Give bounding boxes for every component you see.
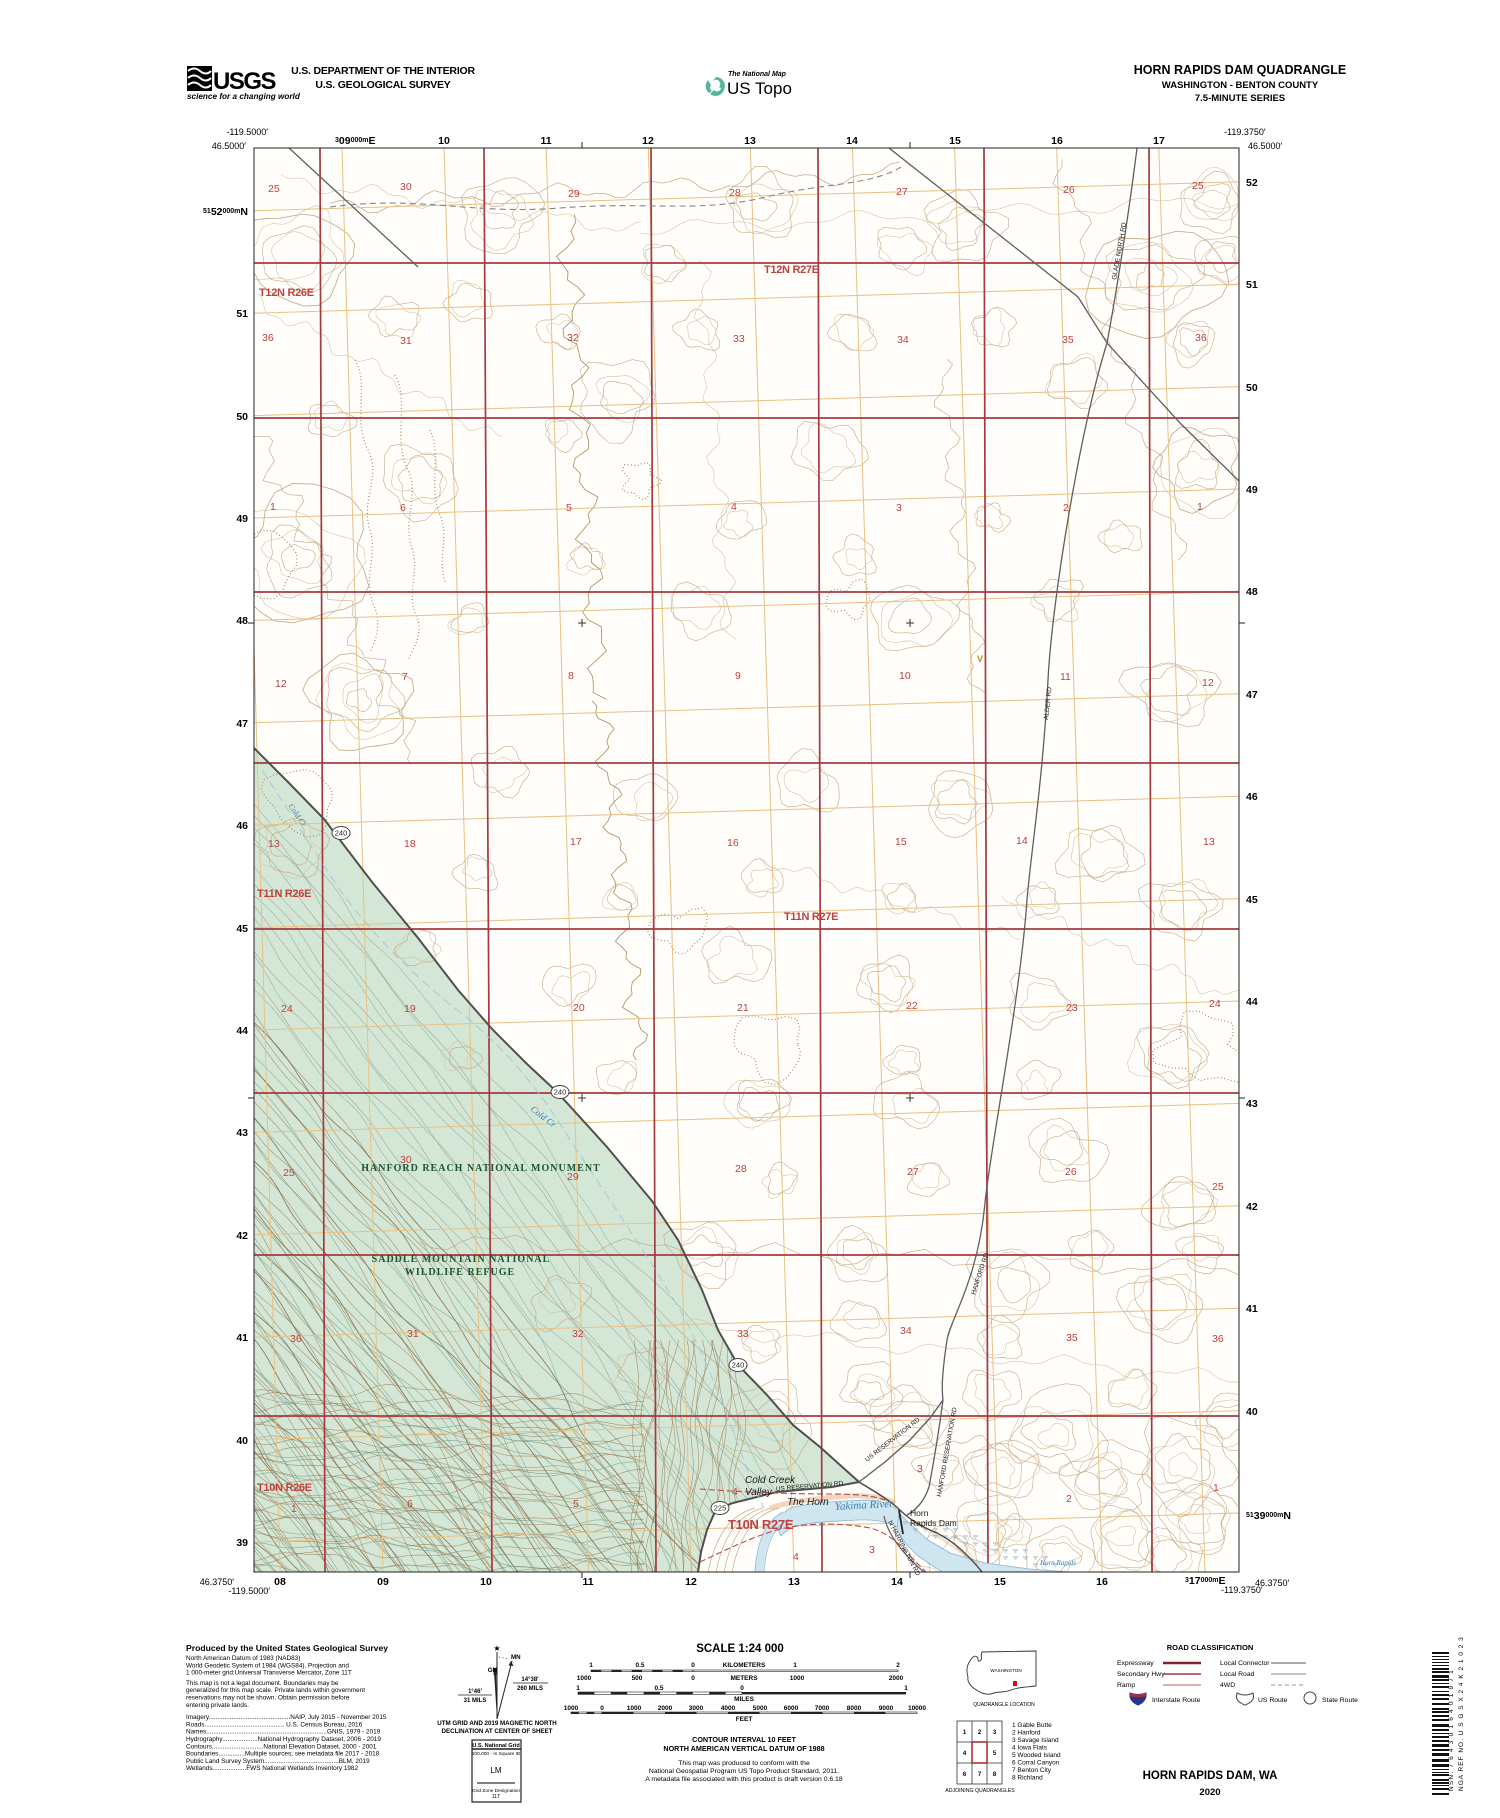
svg-text:15: 15: [895, 836, 907, 848]
svg-text:Ramp: Ramp: [1117, 1682, 1135, 1689]
svg-text:11T: 11T: [492, 1794, 500, 1800]
svg-text:0: 0: [740, 1685, 744, 1692]
svg-text:1 000-meter grid:Universal Tra: 1 000-meter grid:Universal Transverse Me…: [186, 1670, 352, 1677]
svg-text:MILES: MILES: [734, 1696, 755, 1703]
svg-text:43: 43: [236, 1127, 248, 1139]
svg-text:Horn Rapids: Horn Rapids: [1039, 1559, 1076, 1567]
svg-text:SADDLE MOUNTAIN NATIONAL: SADDLE MOUNTAIN NATIONAL: [372, 1254, 551, 1265]
svg-text:U.S. National Grid: U.S. National Grid: [472, 1743, 520, 1749]
svg-text:1: 1: [1197, 501, 1203, 513]
svg-text:NSN. 7 6 4 3 0 1 6 4 0 1 9 7: NSN. 7 6 4 3 0 1 6 4 0 1 9 7 1: [1448, 1669, 1455, 1791]
svg-text:6000: 6000: [784, 1705, 799, 1712]
svg-text:1 Gable Butte: 1 Gable Butte: [1012, 1722, 1052, 1729]
svg-text:1: 1: [793, 1662, 797, 1669]
svg-text:1000: 1000: [627, 1705, 642, 1712]
svg-text:ROAD CLASSIFICATION: ROAD CLASSIFICATION: [1167, 1643, 1254, 1652]
svg-text:8000: 8000: [847, 1705, 862, 1712]
svg-text:11: 11: [1060, 671, 1071, 683]
svg-text:44: 44: [236, 1025, 248, 1037]
svg-text:24: 24: [1209, 998, 1221, 1010]
svg-text:09: 09: [377, 1576, 389, 1588]
svg-text:51: 51: [1246, 279, 1258, 291]
svg-text:2000: 2000: [658, 1705, 673, 1712]
svg-text:This map was produced to confo: This map was produced to conform with th…: [678, 1760, 810, 1767]
svg-text:0: 0: [691, 1662, 695, 1669]
svg-text:US Topo: US Topo: [727, 79, 792, 98]
svg-text:-119.5000′: -119.5000′: [226, 127, 268, 137]
svg-text:28: 28: [729, 187, 741, 199]
svg-text:12: 12: [1202, 677, 1214, 689]
svg-text:Produced by the United States: Produced by the United States Geological…: [186, 1643, 388, 1653]
svg-text:3 Savage Island: 3 Savage Island: [1012, 1737, 1059, 1744]
svg-text:2: 2: [1063, 502, 1069, 514]
svg-text:31: 31: [407, 1328, 419, 1340]
svg-text:entering private lands.: entering private lands.: [186, 1702, 249, 1709]
svg-text:8: 8: [568, 670, 574, 682]
svg-text:North American Datum of 1983 (: North American Datum of 1983 (NAD83): [186, 1655, 300, 1662]
svg-text:36: 36: [1195, 332, 1207, 344]
svg-text:Imagery.......................: Imagery.................................…: [186, 1714, 387, 1721]
svg-text:7: 7: [402, 671, 408, 683]
svg-text:31 MILS: 31 MILS: [464, 1698, 487, 1704]
svg-text:1: 1: [1213, 1482, 1219, 1494]
svg-text:31: 31: [400, 335, 412, 347]
svg-text:Wetlands...................FWS: Wetlands...................FWS National …: [186, 1765, 358, 1772]
svg-text:25: 25: [1212, 1181, 1224, 1193]
svg-text:16: 16: [727, 837, 739, 849]
svg-text:UTM GRID AND 2019 MAGNETIC NOR: UTM GRID AND 2019 MAGNETIC NORTH: [437, 1720, 557, 1727]
svg-text:HORN RAPIDS DAM QUADRANGLE: HORN RAPIDS DAM QUADRANGLE: [1134, 63, 1347, 77]
svg-text:METERS: METERS: [730, 1675, 758, 1682]
svg-text:-119.3750′: -119.3750′: [1224, 127, 1266, 137]
svg-text:DECLINATION AT CENTER OF SHEET: DECLINATION AT CENTER OF SHEET: [442, 1728, 553, 1735]
svg-text:2: 2: [896, 1662, 900, 1669]
svg-text:49: 49: [236, 513, 248, 525]
svg-text:23: 23: [1066, 1002, 1078, 1014]
svg-text:30: 30: [400, 181, 412, 193]
svg-text:21: 21: [737, 1002, 749, 1014]
svg-text:1000: 1000: [577, 1675, 592, 1682]
svg-text:NGA REF NO. U S G S X 2 4 K 2: NGA REF NO. U S G S X 2 4 K 2 1 0 2 3: [1458, 1636, 1465, 1791]
svg-text:U.S. GEOLOGICAL SURVEY: U.S. GEOLOGICAL SURVEY: [315, 79, 450, 91]
svg-text:Hydrography...................: Hydrography....................National …: [186, 1736, 381, 1743]
svg-text:QUADRANGLE LOCATION: QUADRANGLE LOCATION: [973, 1702, 1035, 1708]
svg-text:260 MILS: 260 MILS: [517, 1686, 543, 1692]
svg-text:NORTH AMERICAN VERTICAL DATUM: NORTH AMERICAN VERTICAL DATUM OF 1988: [663, 1744, 824, 1753]
svg-text:51: 51: [236, 308, 248, 320]
svg-text:MN: MN: [511, 1654, 521, 1661]
svg-text:LM: LM: [490, 1766, 501, 1775]
svg-text:10000: 10000: [908, 1705, 926, 1712]
svg-text:1: 1: [904, 1685, 908, 1692]
svg-text:36: 36: [262, 332, 274, 344]
svg-text:National Geospatial Program US: National Geospatial Program US Topo Prod…: [649, 1768, 839, 1775]
svg-text:Boundaries...............Multi: Boundaries...............Multiple source…: [186, 1751, 380, 1758]
svg-text:44: 44: [1246, 996, 1258, 1008]
svg-text:28: 28: [735, 1163, 747, 1175]
svg-text:1: 1: [576, 1685, 580, 1692]
svg-text:generalized for this map scale: generalized for this map scale. Private …: [186, 1687, 365, 1694]
svg-text:4000: 4000: [721, 1705, 736, 1712]
svg-text:12: 12: [685, 1576, 697, 1588]
svg-text:12: 12: [642, 135, 654, 147]
svg-text:Rapids Dam: Rapids Dam: [910, 1518, 957, 1528]
svg-text:14: 14: [891, 1576, 903, 1588]
svg-text:V: V: [977, 654, 983, 664]
svg-text:49: 49: [1246, 484, 1258, 496]
svg-text:T12N R26E: T12N R26E: [259, 287, 314, 299]
svg-text:WASHINGTON - BENTON COUNTY: WASHINGTON - BENTON COUNTY: [1162, 80, 1319, 91]
svg-text:SCALE 1:24 000: SCALE 1:24 000: [696, 1643, 784, 1655]
svg-text:08: 08: [274, 1576, 286, 1588]
svg-text:T10N R27E: T10N R27E: [728, 1517, 794, 1532]
svg-text:Local Road: Local Road: [1220, 1671, 1255, 1678]
svg-text:Public Land Survey Syste: Public Land Survey System...............…: [186, 1758, 370, 1765]
svg-text:22: 22: [906, 1000, 918, 1012]
svg-text:16: 16: [1051, 135, 1063, 147]
svg-text:47: 47: [1246, 689, 1258, 701]
svg-text:Valley: Valley: [745, 1487, 773, 1498]
svg-text:HANFORD REACH NATIONAL MONUMEN: HANFORD REACH NATIONAL MONUMENT: [361, 1163, 600, 1174]
svg-text:4: 4: [732, 1486, 738, 1498]
svg-text:18: 18: [404, 838, 416, 850]
svg-text:14°38′: 14°38′: [521, 1677, 539, 1683]
svg-text:3: 3: [917, 1463, 923, 1475]
svg-text:29: 29: [568, 188, 580, 200]
svg-text:43: 43: [1246, 1098, 1258, 1110]
svg-text:State Route: State Route: [1322, 1697, 1358, 1704]
svg-text:Roads.........................: Roads...................................…: [186, 1721, 363, 1728]
svg-text:240: 240: [335, 829, 348, 838]
svg-text:6: 6: [400, 502, 406, 514]
svg-text:T11N R26E: T11N R26E: [257, 888, 311, 900]
svg-text:9: 9: [735, 670, 741, 682]
svg-text:8 Richland: 8 Richland: [1012, 1775, 1043, 1782]
svg-text:10: 10: [480, 1576, 492, 1588]
svg-text:The Horn: The Horn: [787, 1497, 829, 1508]
svg-text:32: 32: [567, 332, 579, 344]
svg-text:ADJOINING QUADRANGLES: ADJOINING QUADRANGLES: [945, 1788, 1015, 1794]
svg-text:0.5: 0.5: [635, 1662, 644, 1669]
svg-text:41: 41: [236, 1332, 248, 1344]
svg-text:reservations may not be shown.: reservations may not be shown. Obtain pe…: [186, 1695, 350, 1702]
svg-text:WASHINGTON: WASHINGTON: [990, 1668, 1021, 1673]
svg-text:★: ★: [493, 1644, 500, 1653]
svg-text:14: 14: [1016, 835, 1028, 847]
svg-text:9000: 9000: [879, 1705, 894, 1712]
svg-text:0: 0: [600, 1705, 604, 1712]
svg-text:3: 3: [869, 1544, 875, 1556]
svg-text:Horn: Horn: [910, 1508, 929, 1518]
svg-text:42: 42: [1246, 1201, 1258, 1213]
svg-text:42: 42: [236, 1230, 248, 1242]
svg-text:USGS: USGS: [213, 68, 277, 95]
svg-text:Names.........................: Names...................................…: [186, 1729, 381, 1736]
svg-text:40: 40: [236, 1435, 248, 1447]
svg-text:500: 500: [632, 1675, 643, 1682]
svg-text:240: 240: [732, 1361, 745, 1370]
svg-text:Secondary Hwy: Secondary Hwy: [1117, 1671, 1165, 1678]
svg-text:17: 17: [570, 836, 582, 848]
svg-text:1000: 1000: [564, 1705, 579, 1712]
svg-text:1: 1: [589, 1662, 593, 1669]
svg-text:1: 1: [270, 501, 276, 513]
svg-text:25: 25: [268, 183, 280, 195]
svg-text:16: 16: [1096, 1576, 1108, 1588]
svg-text:Local Connector: Local Connector: [1220, 1660, 1270, 1667]
svg-text:0.5: 0.5: [654, 1685, 663, 1692]
svg-text:Expressway: Expressway: [1117, 1660, 1154, 1667]
svg-text:T11N R27E: T11N R27E: [784, 911, 838, 923]
svg-text:7000: 7000: [815, 1705, 830, 1712]
svg-text:11: 11: [540, 135, 551, 147]
svg-text:46.5000′: 46.5000′: [1248, 141, 1283, 151]
svg-text:3000: 3000: [689, 1705, 704, 1712]
svg-text:5: 5: [573, 1498, 579, 1510]
svg-text:10: 10: [899, 670, 911, 682]
svg-text:This map is not a legal docume: This map is not a legal document. Bounda…: [186, 1680, 339, 1687]
svg-text:17: 17: [1153, 135, 1165, 147]
svg-text:11: 11: [582, 1576, 593, 1588]
svg-text:4: 4: [793, 1551, 799, 1563]
svg-text:-119.5000′: -119.5000′: [228, 1586, 270, 1596]
svg-text:CONTOUR INTERVAL 10 FEET: CONTOUR INTERVAL 10 FEET: [692, 1735, 796, 1744]
svg-text:40: 40: [1246, 1406, 1258, 1418]
svg-text:48: 48: [236, 615, 248, 627]
svg-text:HORN RAPIDS DAM, WA: HORN RAPIDS DAM, WA: [1143, 1770, 1278, 1782]
svg-text:13: 13: [788, 1576, 800, 1588]
svg-text:20: 20: [573, 1002, 585, 1014]
svg-text:47: 47: [236, 718, 248, 730]
svg-text:35: 35: [1062, 334, 1074, 346]
svg-text:FEET: FEET: [736, 1716, 753, 1723]
svg-text:1°46′: 1°46′: [468, 1689, 482, 1695]
svg-text:39: 39: [236, 1537, 248, 1549]
svg-text:45: 45: [1246, 894, 1258, 906]
svg-text:15: 15: [994, 1576, 1006, 1588]
svg-text:26: 26: [1065, 1166, 1077, 1178]
svg-text:33: 33: [733, 333, 745, 345]
svg-text:25: 25: [283, 1167, 295, 1179]
svg-text:10: 10: [438, 135, 450, 147]
svg-text:US Route: US Route: [1258, 1697, 1288, 1704]
svg-text:KILOMETERS: KILOMETERS: [723, 1662, 766, 1669]
svg-text:25: 25: [1192, 180, 1204, 192]
svg-text:45: 45: [236, 923, 248, 935]
svg-text:225: 225: [714, 1504, 727, 1513]
svg-text:2 Hanford: 2 Hanford: [1012, 1730, 1041, 1737]
svg-text:48: 48: [1246, 586, 1258, 598]
svg-text:Interstate Route: Interstate Route: [1152, 1697, 1201, 1704]
svg-text:240: 240: [554, 1088, 567, 1097]
svg-text:32: 32: [572, 1328, 584, 1340]
svg-text:7 Benton City: 7 Benton City: [1012, 1767, 1052, 1774]
svg-text:1000: 1000: [790, 1675, 805, 1682]
svg-text:36: 36: [290, 1333, 302, 1345]
svg-text:6 Corral Canyon: 6 Corral Canyon: [1012, 1760, 1060, 1767]
svg-text:24: 24: [281, 1003, 293, 1015]
svg-text:33: 33: [737, 1328, 749, 1340]
svg-text:13: 13: [744, 135, 756, 147]
svg-text:1: 1: [291, 1503, 297, 1515]
svg-text:The National Map: The National Map: [728, 71, 787, 78]
svg-text:50: 50: [1246, 382, 1258, 394]
svg-text:2: 2: [1066, 1493, 1072, 1505]
svg-text:27: 27: [896, 186, 908, 198]
svg-text:3: 3: [896, 502, 902, 514]
svg-text:Contours......................: Contours.............................Nat…: [186, 1743, 377, 1750]
svg-text:27: 27: [907, 1166, 919, 1178]
svg-text:GN: GN: [488, 1667, 498, 1674]
svg-text:science for a changing world: science for a changing world: [187, 92, 301, 101]
svg-text:52: 52: [1246, 177, 1258, 189]
svg-text:19: 19: [404, 1003, 416, 1015]
svg-text:14: 14: [846, 135, 858, 147]
svg-text:13: 13: [1203, 836, 1215, 848]
svg-text:12: 12: [275, 678, 287, 690]
svg-text:15: 15: [949, 135, 961, 147]
svg-text:4: 4: [731, 501, 737, 513]
svg-text:46: 46: [1246, 791, 1258, 803]
svg-text:T10N R26E: T10N R26E: [257, 1482, 312, 1494]
svg-text:5: 5: [566, 502, 572, 514]
svg-text:-119.3750′: -119.3750′: [1221, 1585, 1263, 1595]
svg-text:0: 0: [691, 1675, 695, 1682]
svg-text:4 Iowa Flats: 4 Iowa Flats: [1012, 1745, 1048, 1752]
svg-text:2020: 2020: [1199, 1787, 1220, 1798]
svg-text:26: 26: [1063, 184, 1075, 196]
svg-text:100,000 - m Square ID: 100,000 - m Square ID: [472, 1751, 521, 1757]
svg-text:4WD: 4WD: [1220, 1682, 1235, 1689]
svg-text:36: 36: [1212, 1333, 1224, 1345]
svg-text:41: 41: [1246, 1303, 1258, 1315]
svg-text:7.5-MINUTE SERIES: 7.5-MINUTE SERIES: [1195, 93, 1285, 104]
svg-text:WILDLIFE REFUGE: WILDLIFE REFUGE: [405, 1267, 515, 1278]
svg-text:46.5000′: 46.5000′: [212, 141, 247, 151]
svg-text:34: 34: [900, 1325, 912, 1337]
svg-text:2000: 2000: [889, 1675, 904, 1682]
svg-text:5 Wooded Island: 5 Wooded Island: [1012, 1752, 1061, 1759]
svg-text:World Geodetic System of 1984: World Geodetic System of 1984 (WGS84). P…: [186, 1662, 349, 1669]
svg-text:50: 50: [236, 411, 248, 423]
svg-text:T12N R27E: T12N R27E: [764, 264, 819, 276]
svg-text:34: 34: [897, 334, 909, 346]
svg-text:U.S. DEPARTMENT OF THE INTERIO: U.S. DEPARTMENT OF THE INTERIOR: [291, 65, 475, 77]
svg-text:46: 46: [236, 820, 248, 832]
svg-text:A metadata file associated wit: A metadata file associated with this pro…: [645, 1776, 842, 1783]
svg-text:35: 35: [1066, 1332, 1078, 1344]
svg-text:5000: 5000: [753, 1705, 768, 1712]
svg-text:6: 6: [407, 1498, 413, 1510]
svg-text:13: 13: [268, 838, 280, 850]
